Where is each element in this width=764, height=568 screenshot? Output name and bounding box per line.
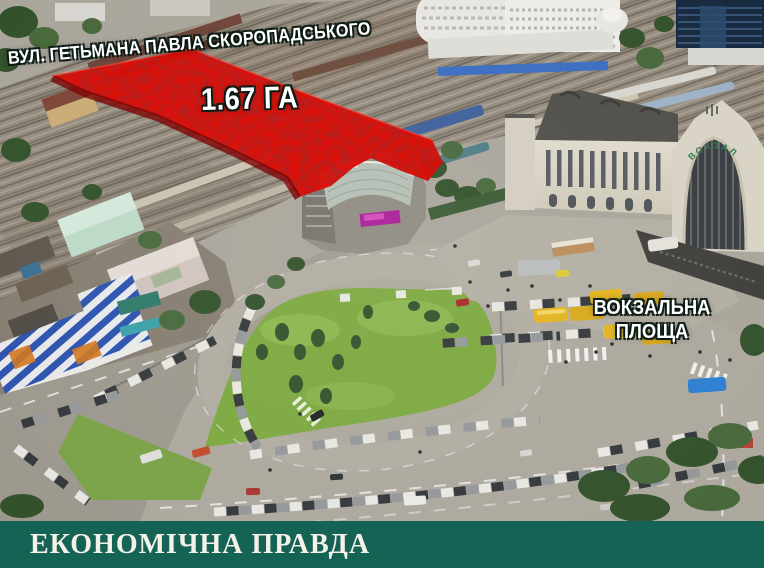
square-name-label: ВОКЗАЛЬНА ПЛОЩА (593, 297, 711, 344)
aerial-photo: ВОКЗАЛ (0, 0, 764, 568)
square-name-line2: ПЛОЩА (593, 321, 711, 345)
square-name-line1: ВОКЗАЛЬНА (593, 297, 711, 321)
area-size-label: 1.67 ГА (201, 81, 299, 116)
annotated-aerial-view: ВОКЗАЛ (0, 0, 764, 568)
source-banner: ЕКОНОМІЧНА ПРАВДА (0, 521, 764, 568)
source-banner-text: ЕКОНОМІЧНА ПРАВДА (30, 529, 370, 561)
